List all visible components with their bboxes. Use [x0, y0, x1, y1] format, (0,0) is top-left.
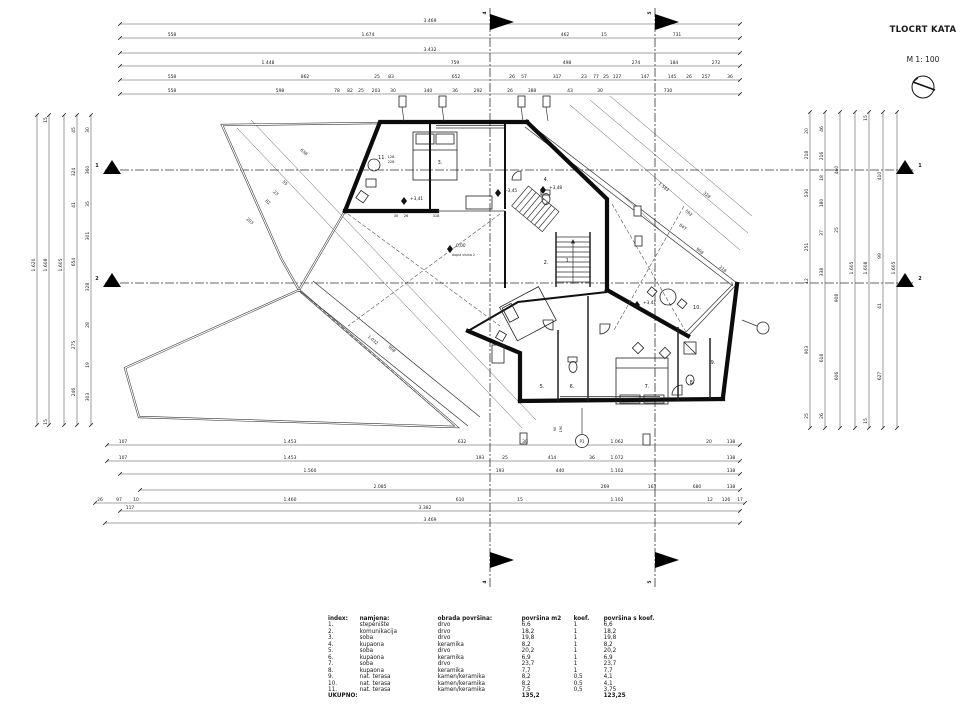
- dim-label: 638: [299, 147, 309, 156]
- dim-label: 2.085: [374, 484, 387, 490]
- dim-label: 610: [456, 497, 465, 503]
- dim-label: 26: [97, 497, 103, 503]
- dim-label: 25: [374, 74, 380, 80]
- dim-label: 78: [334, 88, 340, 94]
- dim-label: 759: [451, 60, 460, 66]
- dim-label: 1.583: [658, 181, 671, 193]
- dim-label: 360: [85, 166, 91, 175]
- dim-label: 303: [85, 393, 91, 402]
- dim-label: 530: [804, 189, 810, 198]
- dim-label: 1.102: [611, 497, 624, 503]
- dim-label: 193: [496, 468, 505, 474]
- section-label: 4: [482, 580, 488, 583]
- dim-label: 180: [819, 199, 825, 208]
- dim-label: 107: [119, 455, 128, 461]
- dim-label: 12: [707, 497, 713, 503]
- dim-label: 43: [567, 88, 573, 94]
- dim-label: 440: [556, 468, 565, 474]
- tag-label: P1: [580, 439, 585, 444]
- dim-label: 652: [452, 74, 461, 80]
- dim-label: 3.469: [424, 18, 437, 24]
- dim-label: 138: [727, 484, 736, 490]
- dim-label: 558: [168, 88, 177, 94]
- section-label: 1: [918, 163, 922, 169]
- dim-label: 632: [458, 439, 467, 445]
- dim-label: 388: [528, 88, 537, 94]
- dim-label: 127: [613, 74, 622, 80]
- inline-dim-label: 30: [394, 214, 399, 218]
- dim-label: 30: [85, 127, 91, 133]
- section-flag-left-1: [103, 160, 121, 174]
- dim-label: 3.469: [424, 517, 437, 523]
- dim-label: 15: [863, 115, 869, 121]
- dim-label: 338: [819, 268, 825, 277]
- void-cross-marks: [348, 204, 686, 332]
- dim-label: 292: [474, 88, 483, 94]
- dim-label: 15: [43, 117, 49, 123]
- dim-label: 23: [581, 74, 587, 80]
- room-label: 4.: [544, 177, 549, 183]
- section-label: 2: [918, 276, 922, 282]
- room-label: 7.: [645, 384, 650, 390]
- dim-label: 627: [877, 372, 883, 381]
- north-arrow-icon: [912, 76, 935, 98]
- dim-label: 55: [281, 179, 289, 187]
- dim-label: 1.448: [262, 60, 275, 66]
- dim-label: 908: [387, 344, 397, 353]
- dim-label: 15: [863, 418, 869, 424]
- dim-label: 35: [85, 201, 91, 207]
- dim-label: 218: [804, 151, 810, 160]
- dim-label: 558: [168, 32, 177, 38]
- dim-label: 1.674: [362, 32, 375, 38]
- dim-label: 163: [648, 484, 657, 490]
- inline-dim-label: 228: [388, 160, 396, 164]
- dim-label: 203: [245, 216, 255, 225]
- legend-table: index:namjena:obrada površina:površina m…: [328, 616, 666, 700]
- dim-label: 107: [119, 439, 128, 445]
- room-label: 2.: [544, 260, 549, 266]
- dim-label: 25: [834, 227, 840, 233]
- elevation-label: +3,45: [504, 188, 517, 194]
- dim-label: 598: [276, 88, 285, 94]
- furniture: [356, 132, 696, 404]
- dim-label: 1.605: [849, 261, 855, 274]
- room-label: 6.: [570, 384, 575, 390]
- stair-flight-upper: [512, 186, 559, 232]
- dim-label: 1.605: [58, 258, 64, 271]
- dim-label: 25: [804, 413, 810, 419]
- dim-label: 654: [71, 258, 77, 267]
- drawing-title: TLOCRT KATA: [890, 25, 957, 35]
- dim-label: 618: [819, 354, 825, 363]
- elevation-marker: [495, 189, 501, 197]
- dim-label: 45: [71, 127, 77, 133]
- dim-label: 1.453: [284, 439, 297, 445]
- dim-label: 340: [424, 88, 433, 94]
- inline-dim-label: 128: [388, 155, 396, 159]
- dim-label: 82: [347, 88, 353, 94]
- dim-label: 462: [561, 32, 570, 38]
- dim-label: 1.102: [611, 468, 624, 474]
- legend-cell: [360, 693, 438, 699]
- inline-dim-label: 90: [553, 426, 557, 431]
- dim-label: 25: [603, 74, 609, 80]
- section-flag-bottom-4: [490, 552, 514, 568]
- section-lines: [103, 8, 915, 588]
- dim-label: 257: [702, 74, 711, 80]
- dim-label: 57: [521, 74, 527, 80]
- dim-label: 36: [727, 74, 733, 80]
- dim-label: 26: [507, 88, 513, 94]
- dim-label: 18: [819, 175, 825, 181]
- dim-label: 12: [804, 278, 810, 284]
- room-label: 1.: [566, 258, 571, 264]
- dim-label: 908: [695, 246, 705, 255]
- dim-label: 77: [593, 74, 599, 80]
- section-flag-bottom-5: [655, 552, 679, 568]
- dim-label: 1.605: [891, 261, 897, 274]
- dim-label: 317: [553, 74, 562, 80]
- dim-label: 10: [133, 497, 139, 503]
- dim-label: 126: [722, 497, 731, 503]
- dim-label: 606: [834, 372, 840, 381]
- dim-label: 3.432: [424, 47, 437, 53]
- floor-plan-drawing: TLOCRT KATA M 1: 100 3.4695581.674462157…: [0, 0, 960, 717]
- dim-label: 731: [673, 32, 682, 38]
- dim-label: 203: [372, 88, 381, 94]
- dim-label: 903: [804, 346, 810, 355]
- inline-dim-label: 318: [433, 214, 441, 218]
- legend-cell: 135,2: [522, 693, 574, 699]
- roof-outline: [525, 110, 810, 336]
- dim-label: 324: [71, 168, 77, 177]
- scale-label: M 1: 100: [907, 55, 940, 64]
- dim-label: 680: [693, 484, 702, 490]
- dim-label: 26: [509, 74, 515, 80]
- dim-label: 1.072: [611, 455, 624, 461]
- dim-label: 37: [819, 230, 825, 236]
- dim-label: 36: [589, 455, 595, 461]
- dim-label: 460: [834, 166, 840, 175]
- dim-label: 1.560: [304, 468, 317, 474]
- section-label: 5: [647, 11, 653, 14]
- inline-dim-label: 190: [559, 425, 563, 433]
- dim-label: 30: [390, 88, 396, 94]
- dim-label: 20: [804, 128, 810, 134]
- dim-label: 36: [452, 88, 458, 94]
- dim-label: 26: [819, 413, 825, 419]
- dim-label: 275: [71, 341, 77, 350]
- dim-label: 28: [85, 322, 91, 328]
- section-label: 1: [95, 163, 99, 169]
- section-flag-right-1: [896, 160, 914, 174]
- dim-label: 41: [877, 303, 883, 309]
- dim-label: 145: [668, 74, 677, 80]
- legend-cell: [438, 693, 522, 699]
- dim-label: 216: [819, 152, 825, 161]
- dim-label: 274: [632, 60, 641, 66]
- dim-label: 301: [85, 232, 91, 241]
- dim-label: 30: [597, 88, 603, 94]
- legend-cell: UKUPNO:: [328, 693, 360, 699]
- dim-label: 46: [819, 126, 825, 132]
- dim-label: 30: [522, 439, 528, 445]
- inline-dim-label: 26: [404, 214, 409, 218]
- dim-label: 908: [834, 294, 840, 303]
- dim-label: 251: [804, 243, 810, 252]
- section-flag-left-2: [103, 273, 121, 287]
- room-label: 10.: [693, 305, 701, 311]
- dim-label: 246: [71, 388, 77, 397]
- dim-label: 272: [712, 60, 721, 66]
- dim-label: 25: [502, 455, 508, 461]
- generated-labels: 3.4695581.674462157313.4321.448759498274…: [31, 11, 922, 583]
- room-label: 9.: [711, 360, 716, 366]
- dim-label: 99: [877, 253, 883, 259]
- dim-label: 184: [670, 60, 679, 66]
- stairs: [512, 186, 590, 284]
- room-label: 11.: [378, 155, 386, 161]
- dim-label: 147: [641, 74, 650, 80]
- dim-label: 410: [877, 172, 883, 181]
- dim-label: 3.382: [419, 505, 432, 511]
- elevation-marker: [447, 245, 453, 253]
- dim-label: 41: [71, 202, 77, 208]
- legend: index:namjena:obrada površina:površina m…: [328, 616, 666, 700]
- legend-cell: [574, 693, 604, 699]
- room-label: 8.: [690, 380, 695, 386]
- dim-label: 1.453: [284, 455, 297, 461]
- building-walls: [345, 122, 737, 401]
- dim-label: 328: [85, 283, 91, 292]
- dimension-lines: [35, 22, 899, 525]
- dim-label: 25: [358, 88, 364, 94]
- elevation-label: +3,41: [410, 196, 423, 202]
- dim-label: 15: [601, 32, 607, 38]
- section-label: 2: [95, 276, 99, 282]
- terrace-outlines: [125, 123, 480, 427]
- roof-hatch: [530, 110, 810, 315]
- dim-label: 20: [706, 439, 712, 445]
- section-label: 4: [482, 11, 488, 14]
- section-label: 5: [647, 580, 653, 583]
- dim-label: 83: [388, 74, 394, 80]
- section-flag-right-2: [896, 273, 914, 287]
- dim-label: 15: [517, 497, 523, 503]
- dim-label: 15: [43, 419, 49, 425]
- dim-label: 498: [563, 60, 572, 66]
- dim-label: 138: [727, 455, 736, 461]
- dim-label: 1.620: [31, 258, 37, 271]
- dim-label: 19: [85, 362, 91, 368]
- dim-label: 82: [264, 198, 272, 206]
- dim-label: 862: [301, 74, 310, 80]
- note-label: dupla visina 2: [452, 253, 475, 257]
- dim-label: 138: [727, 468, 736, 474]
- dim-label: 1.608: [863, 261, 869, 274]
- title-block: TLOCRT KATA M 1: 100: [890, 25, 957, 98]
- dim-label: 193: [476, 455, 485, 461]
- dim-label: 117: [126, 505, 135, 511]
- elevation-label: +3,41: [643, 300, 656, 306]
- elevation-marker: [401, 197, 407, 205]
- dim-label: 97: [116, 497, 122, 503]
- dim-label: 328: [702, 190, 712, 199]
- dim-label: 1.032: [367, 334, 380, 346]
- dim-label: 847: [678, 222, 688, 231]
- room-label: 5.: [540, 384, 545, 390]
- dim-label: 269: [601, 484, 610, 490]
- elevation-label: 0,00: [456, 243, 466, 249]
- dim-label: 17: [737, 497, 743, 503]
- dim-label: 26: [686, 74, 692, 80]
- section-flag-top-4: [490, 14, 514, 30]
- room-label: 3.: [438, 160, 443, 166]
- section-flag-top-5: [655, 14, 679, 30]
- dim-label: 23: [272, 189, 280, 197]
- elevation-label: +3,48: [549, 185, 562, 191]
- dim-label: 730: [664, 88, 673, 94]
- dim-label: 414: [548, 455, 557, 461]
- drawing-page: TLOCRT KATA M 1: 100 3.4695581.674462157…: [0, 0, 960, 717]
- legend-cell: 123,25: [604, 693, 666, 699]
- dim-label: 1.608: [43, 258, 49, 271]
- dim-label: 138: [727, 439, 736, 445]
- dim-label: 1.062: [611, 439, 624, 445]
- dim-label: 1.460: [284, 497, 297, 503]
- dim-label: 558: [168, 74, 177, 80]
